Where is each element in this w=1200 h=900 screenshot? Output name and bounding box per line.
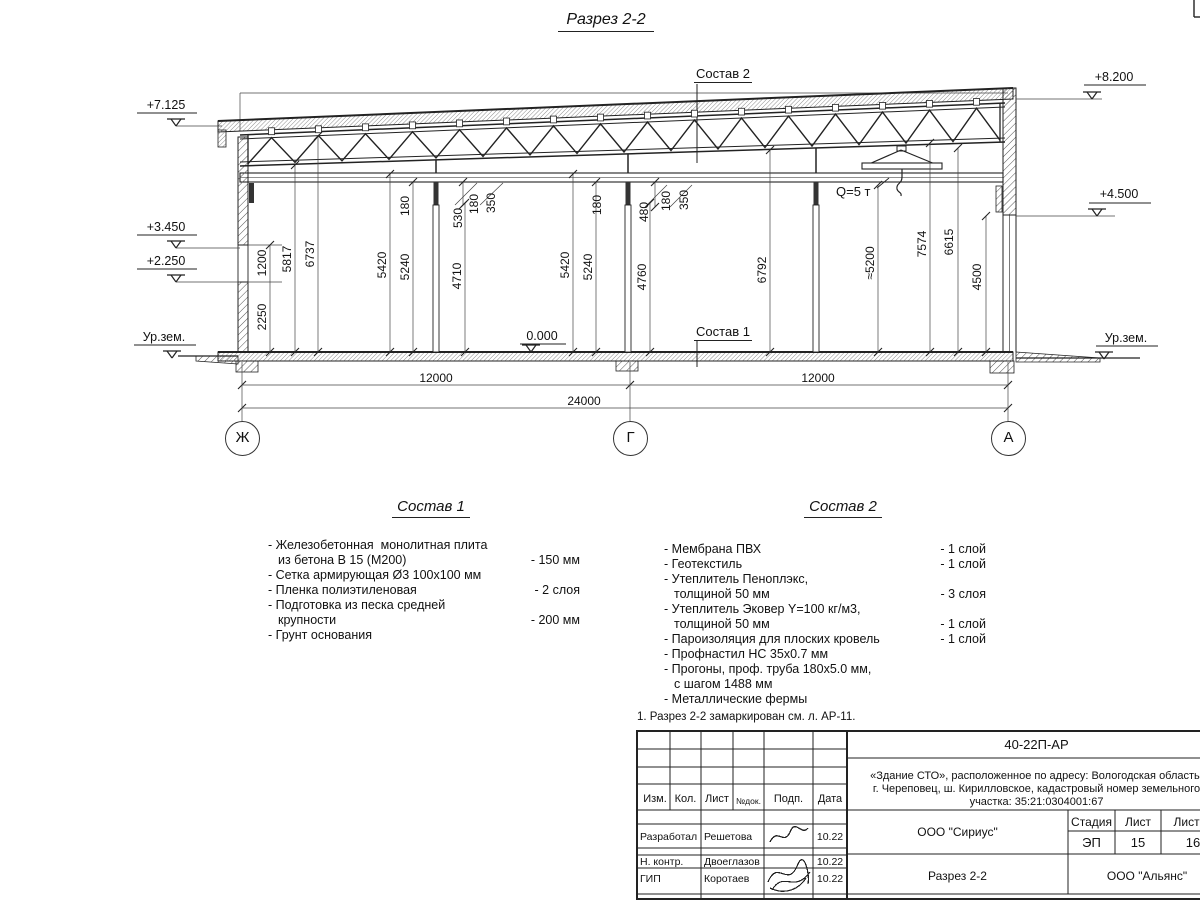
floor-slab [218, 352, 1013, 361]
sheet-title: Разрез 2-2 [558, 11, 654, 32]
dim-6615: 6615 [942, 229, 956, 256]
sheets-label: Листов [1161, 815, 1200, 829]
stamp-role: Разработал [640, 831, 697, 843]
list-item: - Прогоны, проф. труба 180х5.0 мм, с шаг… [664, 662, 986, 692]
left-wall [238, 137, 248, 245]
dim-180-a: 180 [398, 196, 412, 216]
list-item: - Металлические фермы [664, 692, 986, 707]
stamp-date: 10.22 [813, 873, 847, 885]
stamp-role: Н. контр. [640, 856, 683, 868]
ground-level-right: Ур.зем. [1096, 331, 1156, 345]
list-item: - Утеплитель Пеноплэкс, толщиной 50 мм- … [664, 572, 986, 602]
note: 1. Разрез 2-2 замаркирован см. л. АР-11. [637, 711, 855, 723]
axis-g: Г [613, 421, 648, 456]
list-item: - Мембрана ПВХ- 1 слой [664, 542, 986, 557]
dim-7574: 7574 [915, 231, 929, 258]
dim-5240-a: 5240 [398, 254, 412, 281]
dim-180-d: 180 [659, 191, 673, 211]
dim-6792: 6792 [755, 257, 769, 284]
dim-480: 480 [637, 202, 651, 222]
title-block: Изм. Кол. Лист №док. Подп. Дата Разработ… [636, 730, 1200, 900]
dim-5420-a: 5420 [375, 252, 389, 279]
crane-capacity-label: Q=5 т [836, 184, 871, 199]
elevation-zero: 0.000 [518, 329, 566, 343]
list-item: - Пленка полиэтиленовая- 2 слоя [268, 583, 580, 598]
sheet-label: Лист [1115, 815, 1161, 829]
dim-4710: 4710 [450, 263, 464, 290]
roof-slab [218, 88, 1013, 132]
stamp-col-izm: Изм. [640, 793, 670, 805]
dim-4500: 4500 [970, 264, 984, 291]
list-item: - Пароизоляция для плоских кровель- 1 сл… [664, 632, 986, 647]
dim-4760: 4760 [635, 264, 649, 291]
list-item: - Железобетонная монолитная плита из бет… [268, 538, 580, 568]
doc-number: 40-22П-АР [847, 737, 1200, 752]
dim-1200: 1200 [255, 250, 269, 277]
elevation-2250: +2.250 [137, 254, 195, 268]
dim-2250: 2250 [255, 304, 269, 331]
stamp-col-podp: Подп. [764, 793, 813, 805]
dim-180-c: 180 [590, 195, 604, 215]
drawing-sheet: Разрез 2-2 +7.125 +3.450 +2.250 Ур.зем. … [0, 0, 1200, 900]
list-item: - Утеплитель Эковер Y=100 кг/м3, толщино… [664, 602, 986, 632]
project-description: «Здание СТО», расположенное по адресу: В… [847, 770, 1200, 809]
stamp-name: Решетова [704, 831, 752, 843]
elevation-8200: +8.200 [1084, 70, 1144, 84]
elevation-4500: +4.500 [1089, 187, 1149, 201]
sostav2-title: Состав 2 [804, 498, 882, 518]
list-item: - Профнастил НС 35х0.7 мм [664, 647, 986, 662]
ramp [1016, 352, 1100, 362]
dim-5240-b: 5240 [581, 254, 595, 281]
axis-zh: Ж [225, 421, 260, 456]
stage-value: ЭП [1068, 835, 1115, 850]
stamp-date: 10.22 [813, 856, 847, 868]
sostav1-title: Состав 1 [392, 498, 470, 518]
sostav1-list: - Железобетонная монолитная плита из бет… [268, 538, 580, 643]
ground-level-left: Ур.зем. [134, 330, 194, 344]
dim-span-left: 12000 [419, 371, 452, 385]
list-item: - Геотекстиль- 1 слой [664, 557, 986, 572]
elevation-3450: +3.450 [137, 220, 195, 234]
dim-6737: 6737 [303, 241, 317, 268]
signature [768, 860, 810, 892]
stamp-col-ndok: №док. [733, 796, 764, 806]
list-item: - Сетка армирующая Ø3 100х100 мм [268, 568, 580, 583]
stamp-date: 10.22 [813, 831, 847, 843]
dim-5200: ≈5200 [863, 246, 877, 279]
signature [770, 827, 808, 842]
dim-5817: 5817 [280, 246, 294, 273]
sostav2-ref: Состав 2 [694, 66, 752, 83]
stamp-role: ГИП [640, 873, 661, 885]
stamp-name: Коротаев [704, 873, 749, 885]
stamp-name: Двоеглазов [704, 856, 760, 868]
dim-180-b: 180 [467, 194, 481, 214]
stamp-col-kol: Кол. [670, 793, 701, 805]
axis-a: А [991, 421, 1026, 456]
sostav2-list: - Мембрана ПВХ- 1 слой - Геотекстиль- 1 … [664, 542, 986, 707]
stamp-sheet-title: Разрез 2-2 [847, 869, 1068, 883]
list-item: - Грунт основания [268, 628, 580, 643]
dim-350-a: 350 [484, 193, 498, 213]
elevation-7125: +7.125 [137, 98, 195, 112]
stamp-col-data: Дата [813, 793, 847, 805]
org-client: ООО "Альянс" [1068, 869, 1200, 883]
list-item: - Подготовка из песка средней крупности-… [268, 598, 580, 628]
sheets-value: 16 [1161, 835, 1200, 850]
dim-530: 530 [451, 208, 465, 228]
dim-span-right: 12000 [801, 371, 834, 385]
org-designer: ООО "Сириус" [847, 825, 1068, 839]
sheet-value: 15 [1115, 835, 1161, 850]
stage-label: Стадия [1068, 815, 1115, 829]
stamp-col-list: Лист [701, 793, 733, 805]
sostav1-ref: Состав 1 [694, 324, 752, 341]
dim-5420-b: 5420 [558, 252, 572, 279]
dim-total: 24000 [567, 394, 600, 408]
dim-350-b: 350 [677, 190, 691, 210]
